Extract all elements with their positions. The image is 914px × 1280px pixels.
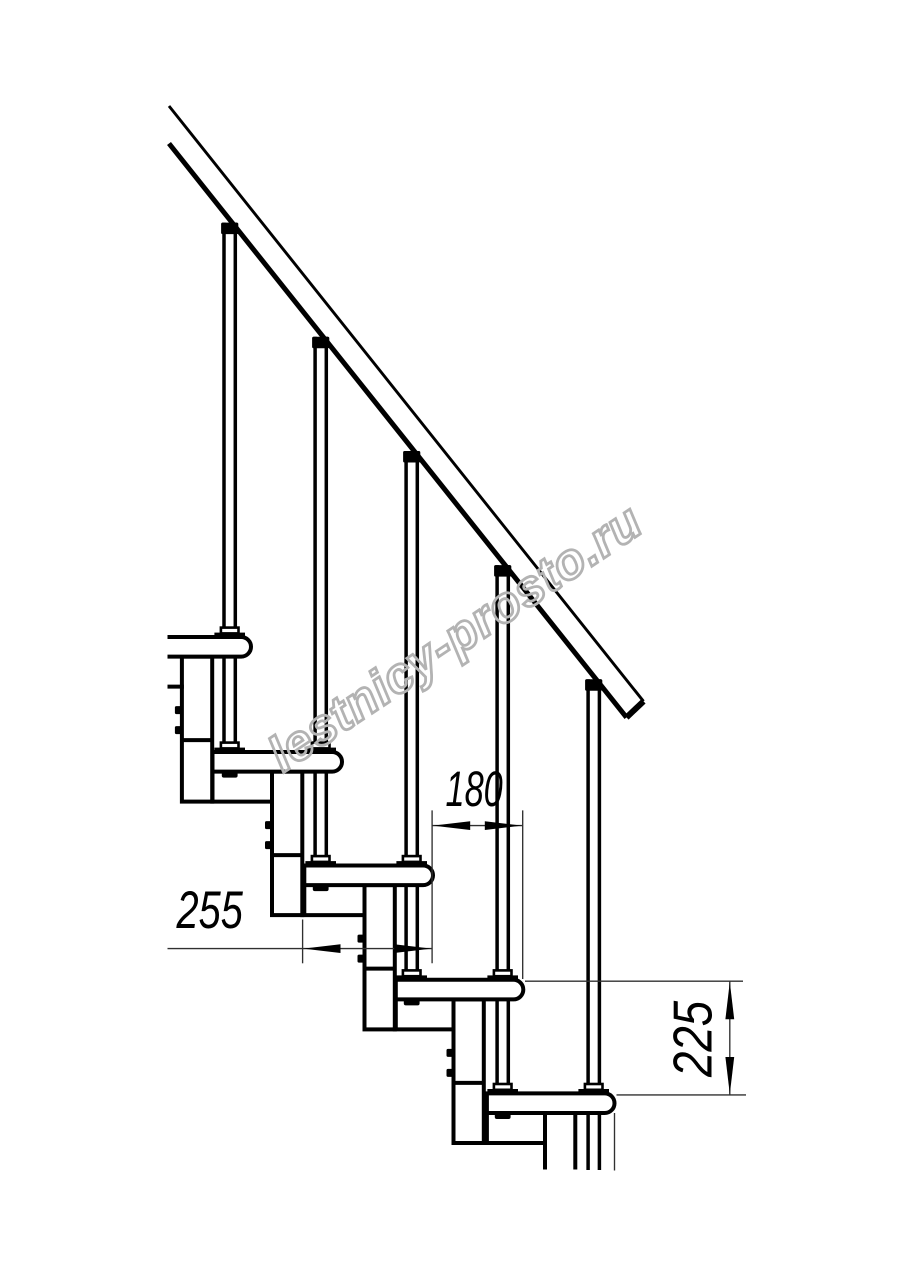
- svg-text:255: 255: [176, 881, 243, 940]
- svg-text:225: 225: [662, 1000, 724, 1077]
- svg-text:180: 180: [446, 761, 503, 817]
